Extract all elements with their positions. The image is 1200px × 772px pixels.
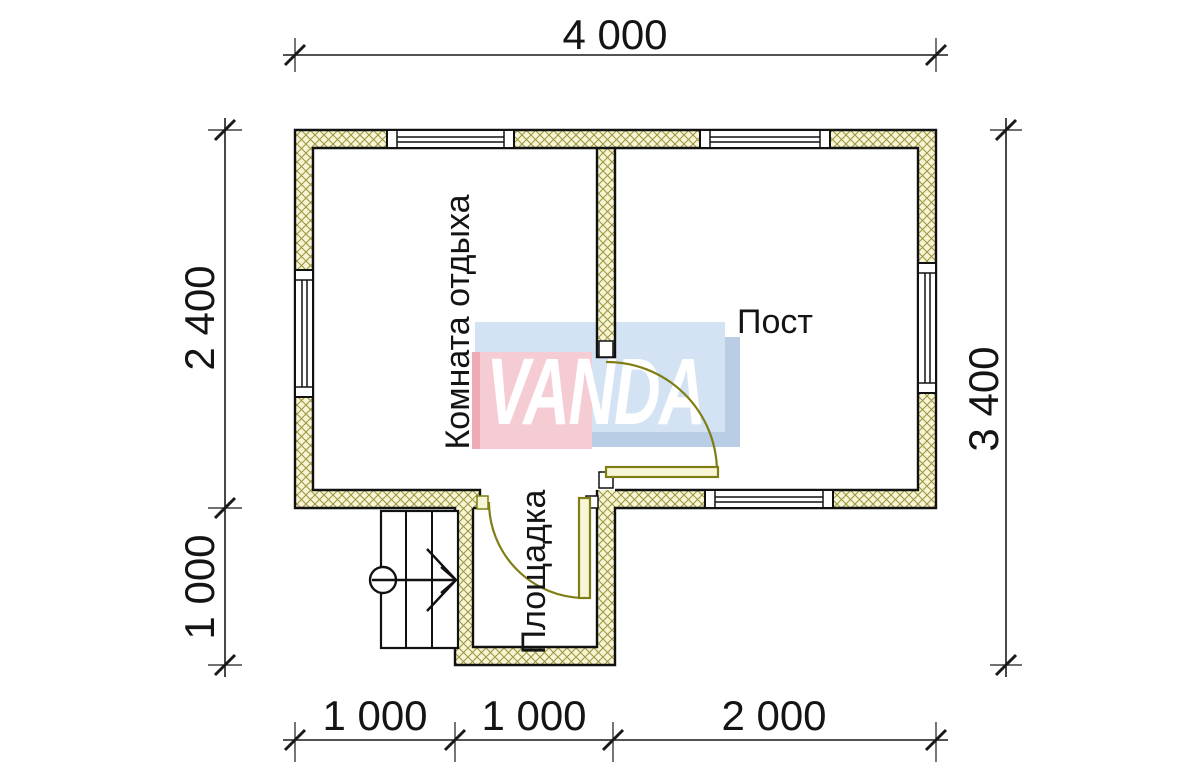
- window-bottom: [705, 490, 833, 508]
- jamb-interior-top: [599, 341, 613, 357]
- wall-interior: [597, 148, 615, 357]
- jamb-entry-left: [477, 496, 488, 509]
- door-leaf-entry: [579, 498, 590, 598]
- dim-right-label: 3 400: [962, 319, 1006, 479]
- dim-bottom-left-label: 1 000: [295, 694, 455, 738]
- window-right: [918, 263, 936, 393]
- room-label-post: Пост: [695, 302, 855, 342]
- dim-left-upper-label: 2 400: [178, 238, 222, 398]
- dim-top-label: 4 000: [515, 13, 715, 57]
- dim-bottom-right-label: 2 000: [694, 694, 854, 738]
- dim-bottom-middle-label: 1 000: [454, 694, 614, 738]
- room-label-landing: Площадка: [514, 472, 554, 672]
- wall-bottom-left: [295, 490, 480, 508]
- door-swing-arc-room: [606, 362, 717, 472]
- stairs: [370, 511, 458, 648]
- room-label-rest-room: Комната отдыха: [438, 182, 478, 462]
- dim-left-lower-label: 1 000: [178, 507, 222, 667]
- wall-porch-right: [597, 508, 615, 665]
- window-left: [295, 270, 313, 397]
- window-top-left: [387, 130, 514, 148]
- window-top-right: [700, 130, 830, 148]
- floor-plan-canvas: VANDA: [0, 0, 1200, 772]
- door-leaf-room: [606, 467, 718, 477]
